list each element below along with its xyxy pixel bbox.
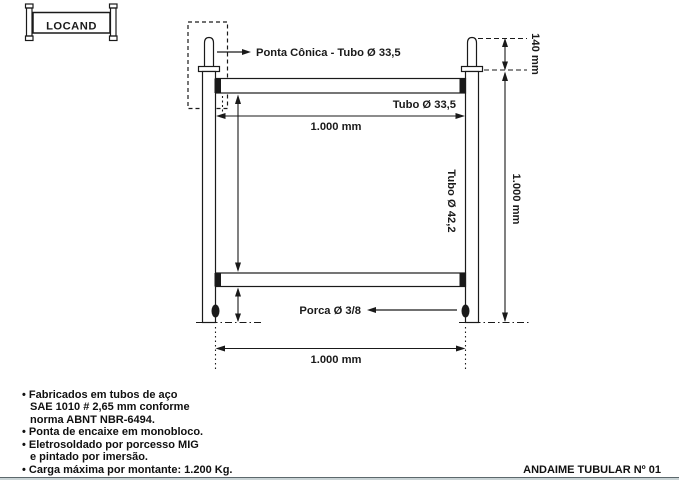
lower-tube-left-cap	[215, 273, 222, 287]
spec-notes: • Fabricados em tubos de aço SAE 1010 # …	[22, 389, 352, 476]
right-height-dimension	[502, 72, 508, 323]
top-tube	[215, 79, 467, 94]
right-height-dim-label: 1.000 mm	[510, 174, 522, 225]
note-line: SAE 1010 # 2,65 mm conforme	[22, 401, 352, 413]
note-line: • Carga máxima por montante: 1.200 Kg.	[22, 464, 352, 476]
note-line: norma ABNT NBR-6494.	[22, 414, 352, 426]
bottom-width-dim-label: 1.000 mm	[311, 354, 362, 366]
logo-wordmark: LOCAND	[46, 21, 97, 33]
right-post-tube	[466, 72, 479, 323]
lower-tube	[215, 273, 467, 287]
right-collar	[462, 67, 483, 72]
tip-height-dimension	[502, 38, 508, 71]
left-conical-tip	[205, 38, 214, 68]
lower-tube-right-cap	[460, 273, 467, 287]
tubo-335-label: Tubo Ø 33,5	[393, 99, 456, 111]
ponta-conica-label: Ponta Cônica - Tubo Ø 33,5	[256, 47, 401, 59]
left-nut	[212, 305, 220, 318]
left-post-tube	[203, 72, 216, 323]
arrowhead-left	[367, 307, 376, 313]
locand-logo: LOCAND	[26, 4, 118, 41]
right-nut	[462, 305, 470, 318]
note-line: • Ponta de encaixe em monobloco.	[22, 426, 352, 438]
logo-left-post-icon	[26, 4, 34, 41]
ponta-conica-leader	[217, 49, 251, 55]
left-collar	[199, 67, 220, 72]
porca-label: Porca Ø 3/8	[299, 305, 361, 317]
tip-extension-lines	[478, 39, 527, 71]
tip-height-dim-label: 140 mm	[529, 33, 541, 75]
mid-vertical-dimension	[235, 95, 241, 273]
note-line: • Eletrosoldado por porcesso MIG	[22, 439, 352, 451]
right-conical-tip	[468, 38, 477, 68]
tubo-422-label: Tubo Ø 42,2	[445, 169, 457, 232]
top-tube-right-cap	[460, 79, 467, 94]
arrowhead-right	[242, 49, 251, 55]
note-line: e pintado por imersão.	[22, 451, 352, 463]
top-width-dim-label: 1.000 mm	[311, 121, 362, 133]
top-tube-left-cap	[215, 79, 222, 94]
drawing-title: ANDAIME TUBULAR Nº 01	[523, 464, 661, 476]
porca-leader	[367, 307, 457, 313]
datasheet-page: LOCAND	[0, 0, 679, 480]
lower-left-dimension	[235, 288, 241, 323]
note-line: • Fabricados em tubos de aço	[22, 389, 352, 401]
